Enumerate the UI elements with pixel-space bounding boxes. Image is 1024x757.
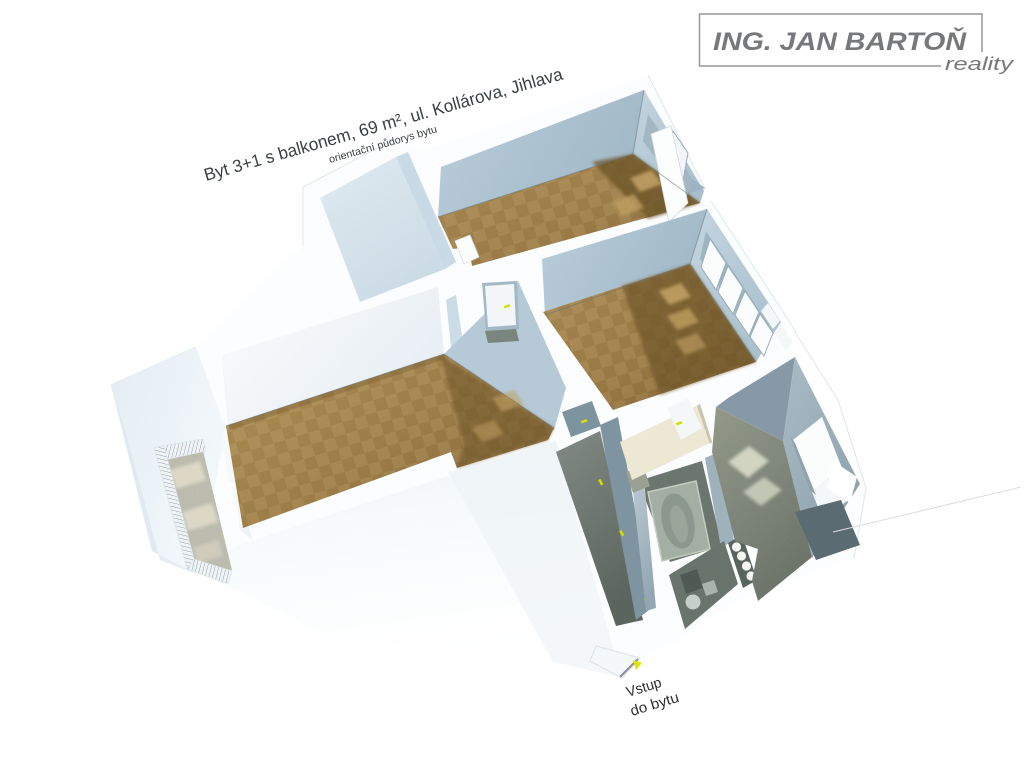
svg-text:reality: reality bbox=[945, 54, 1014, 74]
svg-text:ING. JAN BARTOŇ: ING. JAN BARTOŇ bbox=[713, 26, 967, 56]
